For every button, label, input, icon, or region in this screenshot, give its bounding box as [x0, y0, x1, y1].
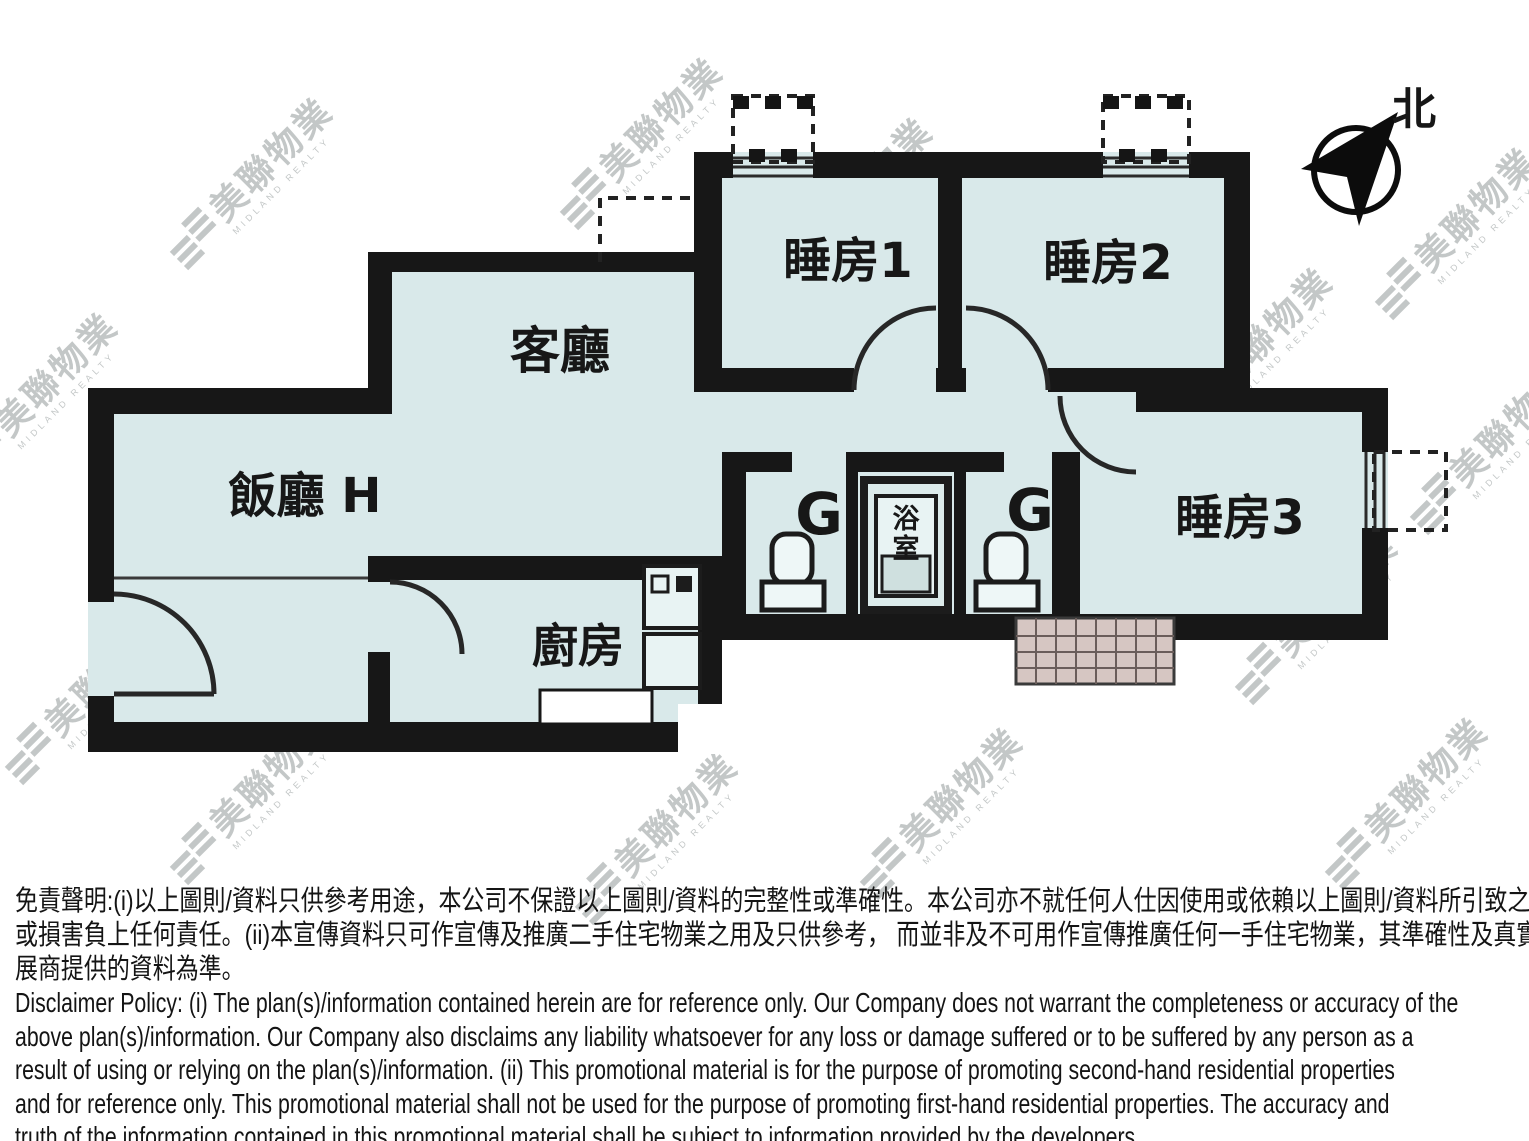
label-bathroom-char1: 浴: [893, 504, 921, 535]
kitchen-counter: [644, 634, 700, 688]
living-dining-kitchen-floor: [88, 252, 722, 752]
toilet-mark-right: G: [1006, 476, 1054, 544]
label-dining-room: 飯廳 H: [229, 468, 382, 524]
label-bedroom2: 睡房2: [1043, 235, 1172, 291]
disclaimer-line-zh-3: 展商提供的資料為準。: [15, 952, 1255, 986]
disclaimer-line-en-3: result of using or relying on the plan(s…: [15, 1053, 1164, 1087]
floor-plan: 睡房1 睡房2 睡房3 客廳 飯廳 H 廚房 浴 室 G G 北: [0, 0, 1529, 870]
label-bathroom-char2: 室: [893, 533, 920, 565]
external-platform: [1016, 618, 1174, 684]
kitchen-fixtures: [644, 566, 700, 688]
disclaimer: 免責聲明:(i)以上圖則/資料只供參考用途，本公司不保證以上圖則/資料的完整性或…: [15, 884, 1527, 1141]
label-bedroom1: 睡房1: [783, 233, 912, 289]
toilet-mark-left: G: [795, 480, 843, 548]
disclaimer-line-en-1: Disclaimer Policy: (i) The plan(s)/infor…: [15, 986, 1164, 1020]
label-bedroom3: 睡房3: [1175, 490, 1304, 546]
disclaimer-line-en-4: and for reference only. This promotional…: [15, 1087, 1164, 1121]
disclaimer-line-zh-2: 或損害負上任何責任。(ii)本宣傳資料只可作宣傳及推廣二手住宅物業之用及只供參考…: [15, 918, 1255, 952]
compass: 北: [1301, 84, 1436, 226]
label-kitchen: 廚房: [532, 619, 624, 673]
floor-plan-page: 美聯物業MIDLAND REALTY美聯物業MIDLAND REALTY美聯物業…: [0, 0, 1529, 1141]
north-label: 北: [1392, 84, 1436, 135]
disclaimer-line-en-2: above plan(s)/information. Our Company a…: [15, 1020, 1164, 1054]
disclaimer-line-zh-1: 免責聲明:(i)以上圖則/資料只供參考用途，本公司不保證以上圖則/資料的完整性或…: [15, 884, 1255, 918]
disclaimer-line-en-5: truth of the information contained in th…: [15, 1120, 1164, 1141]
label-living-room: 客廳: [510, 322, 610, 380]
